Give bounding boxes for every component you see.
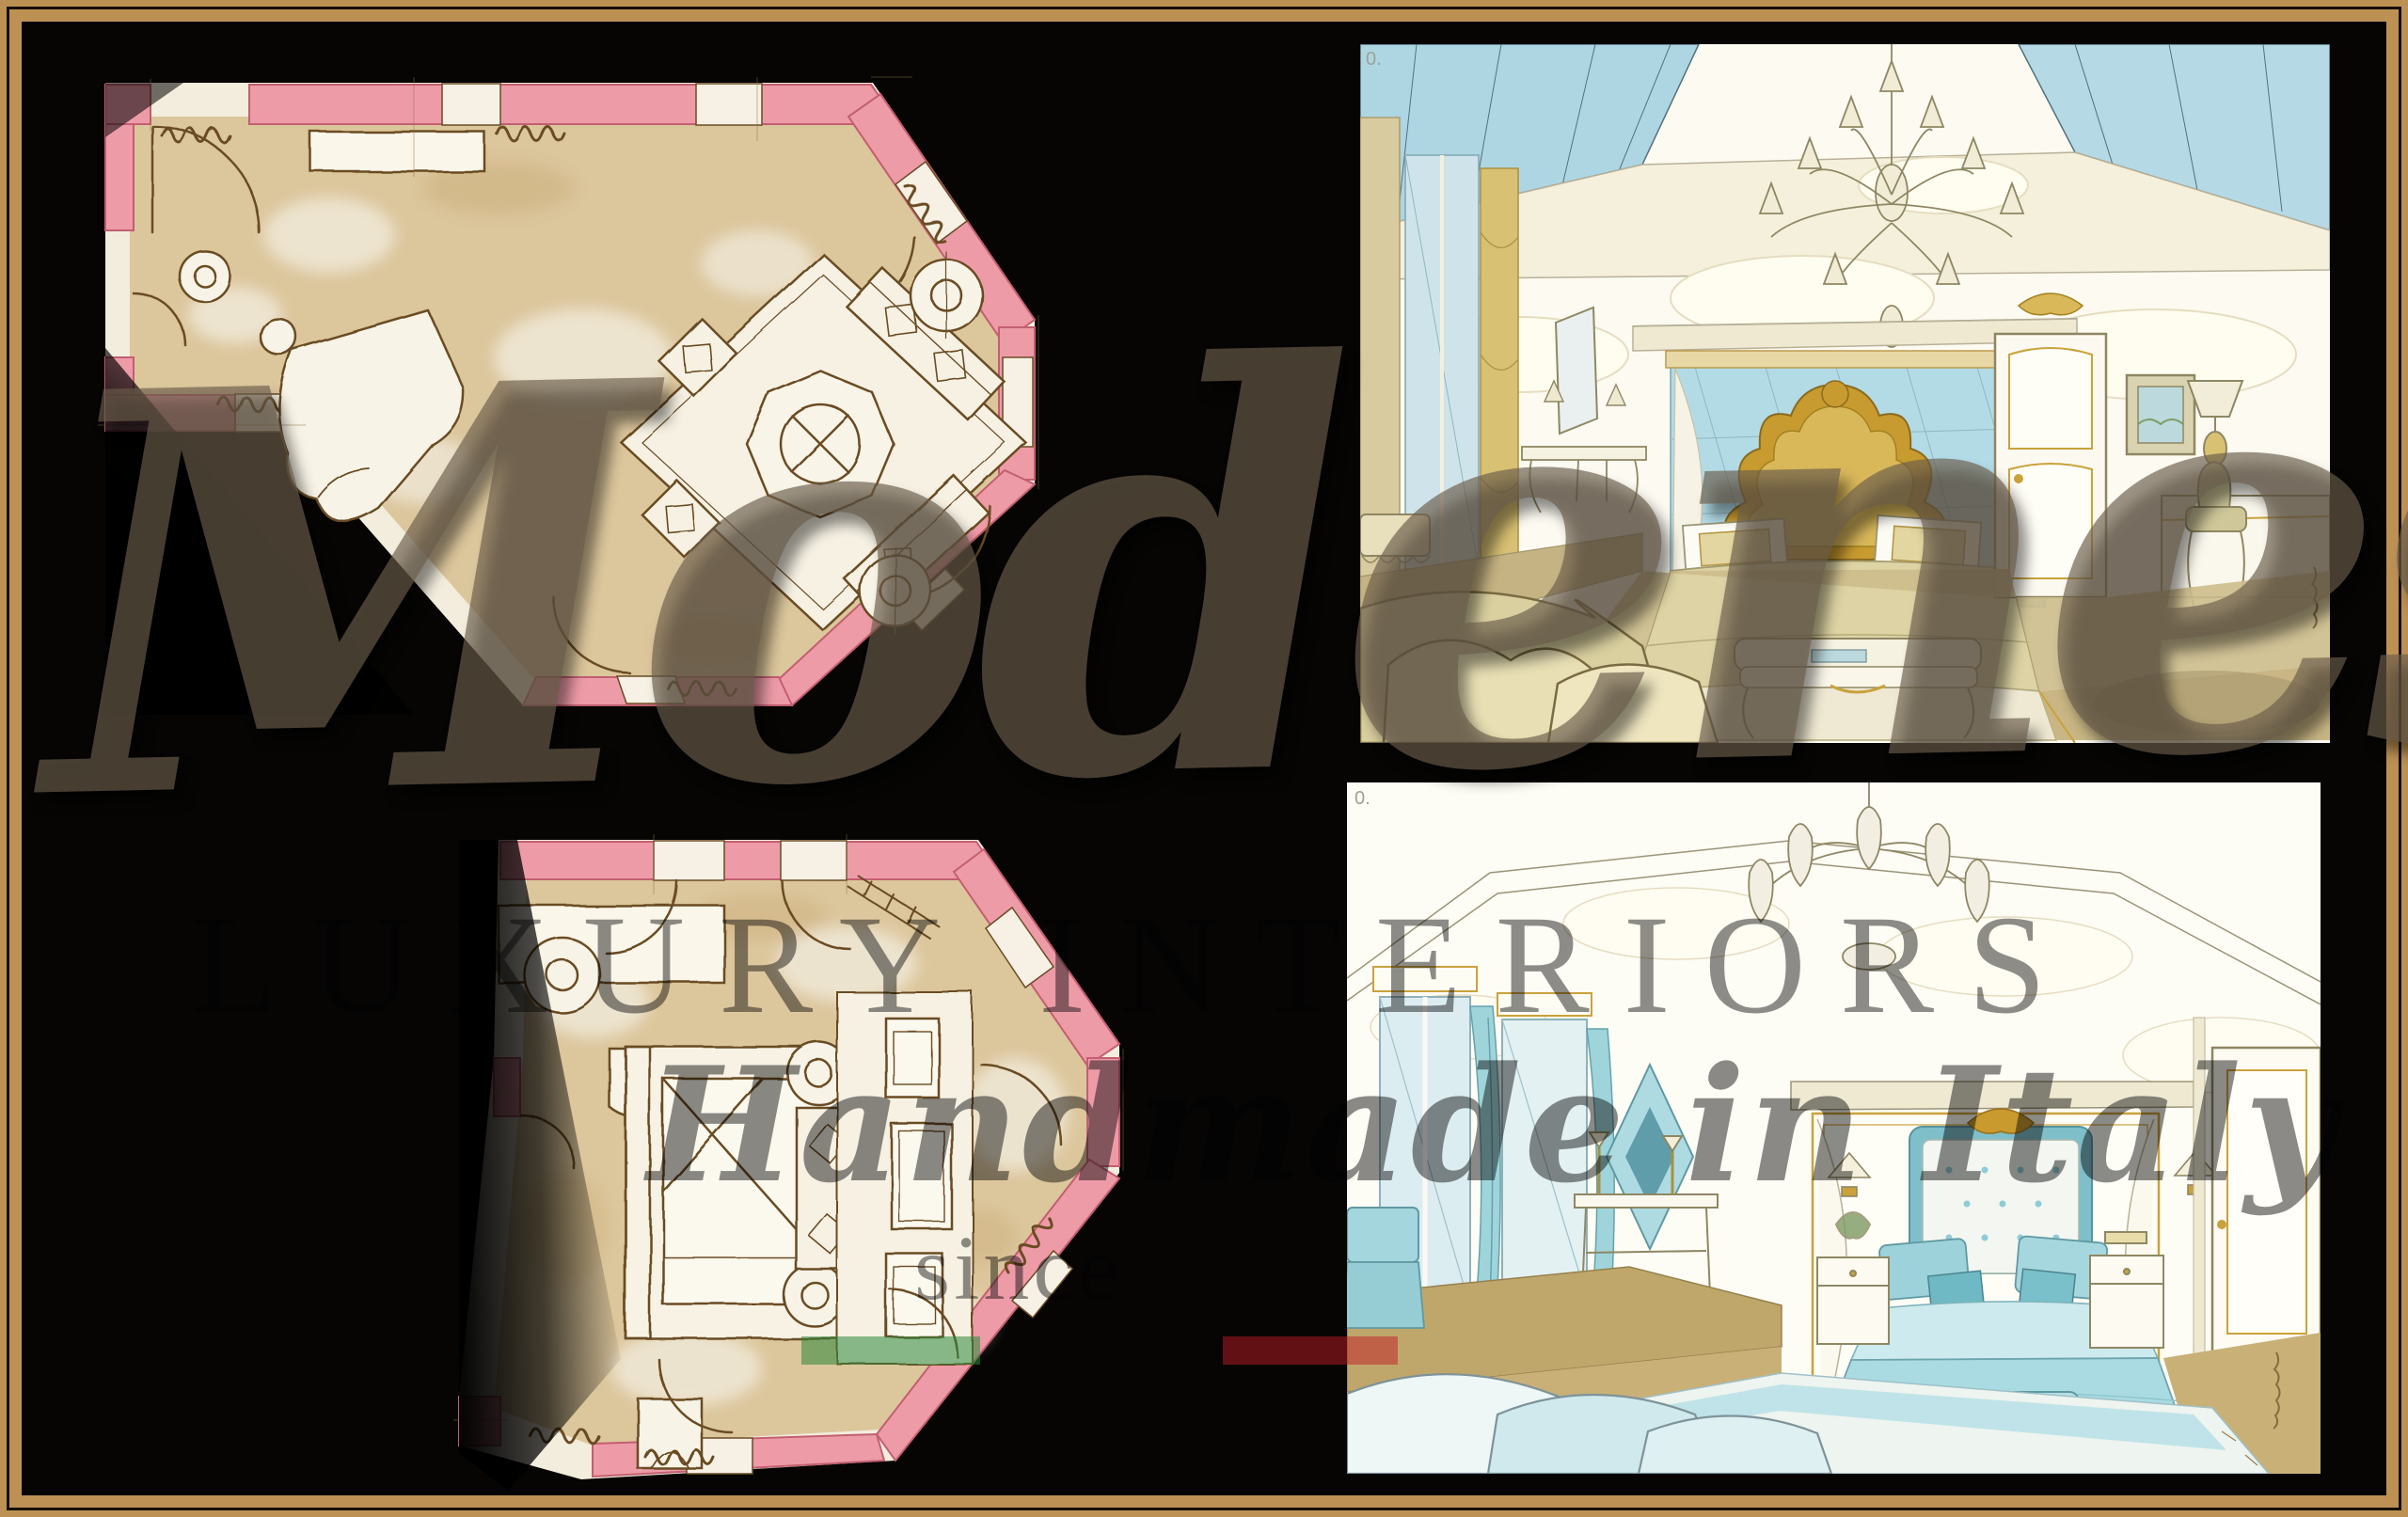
italian-flag-green-bar: [801, 1336, 980, 1365]
sitting-area: [837, 992, 973, 1364]
presentation-board: Modenese LUXURY INTERIORS Handmade in It…: [0, 0, 2408, 1517]
rendering-top: [1360, 44, 2330, 743]
door-handle: [2217, 1220, 2226, 1229]
book: [1812, 650, 1866, 662]
curtain: [1481, 168, 1518, 573]
picture-frame: [2127, 375, 2194, 454]
floor-plan-top: [94, 75, 1044, 715]
lamp-table: [180, 251, 230, 302]
rendering-bottom-corner-mark: 0.: [1354, 788, 1370, 810]
door-handle: [2014, 474, 2023, 483]
octagon-table: [747, 371, 894, 517]
console-table: [310, 132, 484, 171]
rendering-bottom: [1347, 782, 2321, 1474]
italian-flag-red-bar: [1223, 1336, 1398, 1365]
stool: [638, 1398, 702, 1468]
tassel-ottoman: [1360, 514, 1430, 562]
aqua-stool: [1347, 1208, 1424, 1328]
rendering-top-corner-mark: 0.: [1366, 49, 1382, 71]
floor-plan-bottom: [451, 832, 1124, 1491]
